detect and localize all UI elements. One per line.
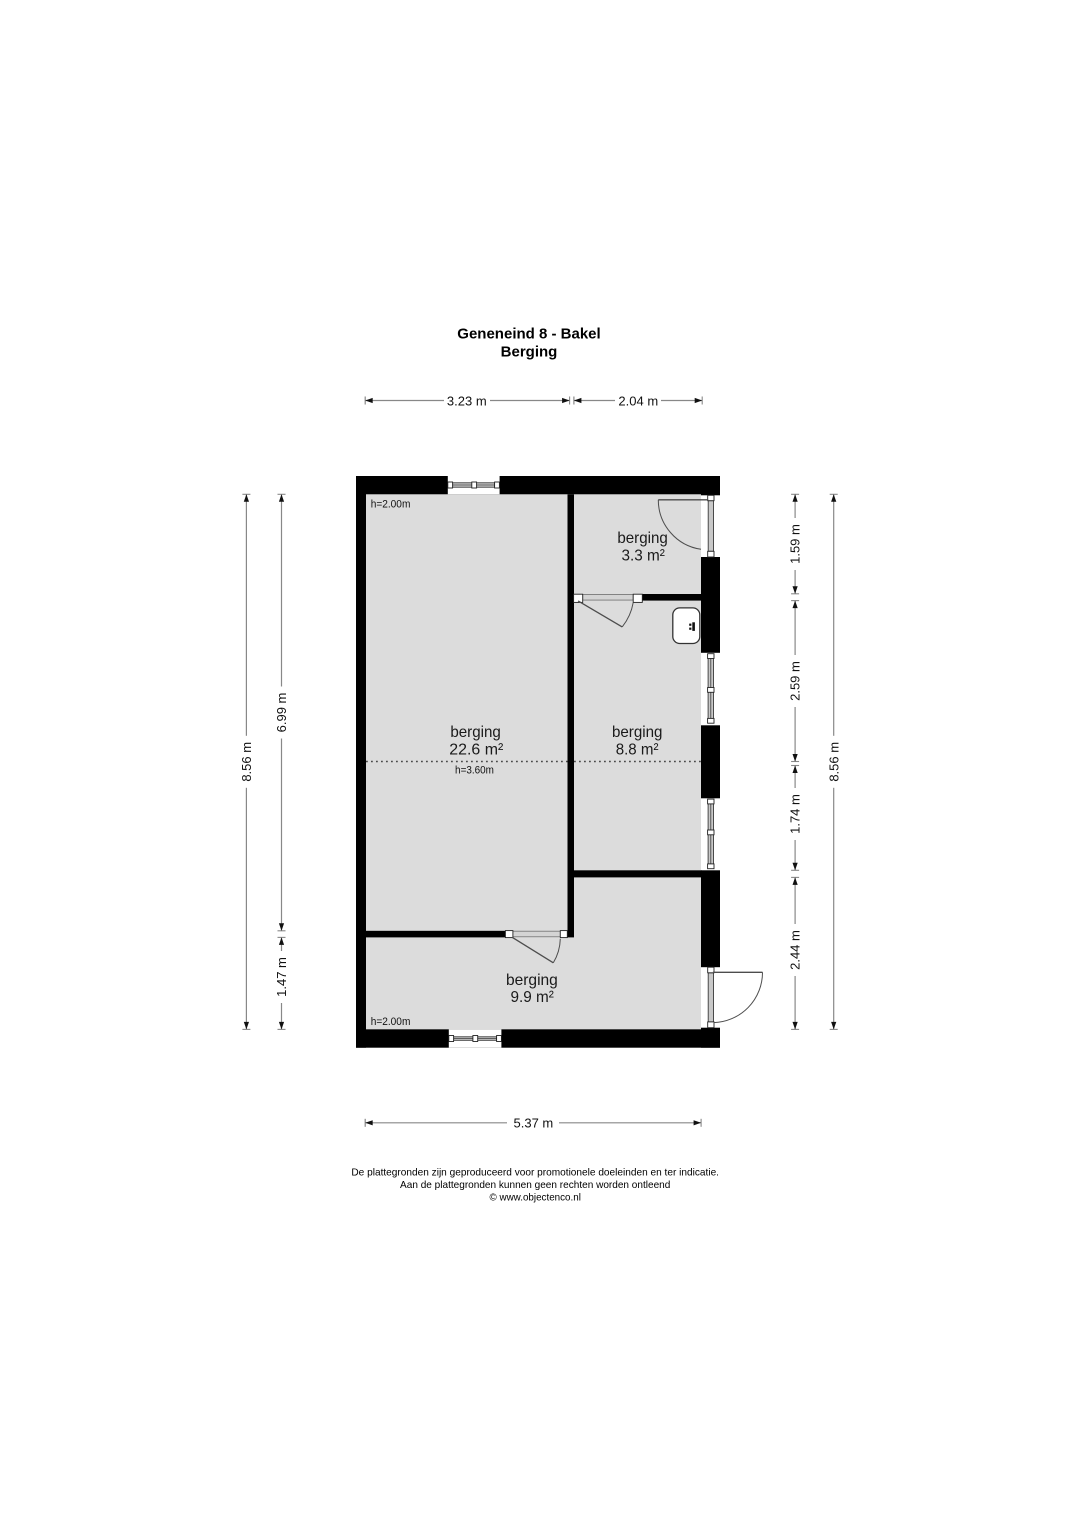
svg-text:5.37 m: 5.37 m xyxy=(514,1116,554,1131)
svg-text:© www.objectenco.nl: © www.objectenco.nl xyxy=(490,1191,581,1203)
svg-text:8.56 m: 8.56 m xyxy=(239,742,254,782)
svg-text:h=2.00m: h=2.00m xyxy=(371,1016,411,1028)
svg-text:berging: berging xyxy=(617,530,668,547)
svg-text:8.8 m²: 8.8 m² xyxy=(616,741,659,758)
svg-text:h=3.60m: h=3.60m xyxy=(455,764,494,776)
svg-text:22.6 m²: 22.6 m² xyxy=(449,741,504,758)
svg-text:Berging: Berging xyxy=(501,344,558,361)
svg-text:berging: berging xyxy=(612,724,663,741)
svg-text:h=2.00m: h=2.00m xyxy=(371,498,411,510)
svg-text:8.56 m: 8.56 m xyxy=(826,742,841,782)
svg-text:berging: berging xyxy=(506,972,558,989)
svg-text:9.9 m²: 9.9 m² xyxy=(511,989,555,1006)
svg-text:2.04 m: 2.04 m xyxy=(618,393,658,408)
svg-text:Geneneind 8 - Bakel: Geneneind 8 - Bakel xyxy=(457,325,600,342)
svg-text:berging: berging xyxy=(450,724,501,741)
svg-text:2.44 m: 2.44 m xyxy=(788,930,803,970)
svg-text:6.99 m: 6.99 m xyxy=(274,693,289,733)
svg-text:2.59 m: 2.59 m xyxy=(788,661,803,701)
svg-text:1.47 m: 1.47 m xyxy=(274,957,289,997)
svg-text:1.59 m: 1.59 m xyxy=(788,524,803,564)
svg-text:1.74 m: 1.74 m xyxy=(788,794,803,834)
svg-text:3.23 m: 3.23 m xyxy=(447,393,487,408)
svg-text:Aan de plattegronden kunnen ge: Aan de plattegronden kunnen geen rechten… xyxy=(400,1179,670,1191)
svg-text:De plattegronden zijn geproduc: De plattegronden zijn geproduceerd voor … xyxy=(351,1166,719,1178)
svg-text:3.3 m²: 3.3 m² xyxy=(622,547,666,564)
